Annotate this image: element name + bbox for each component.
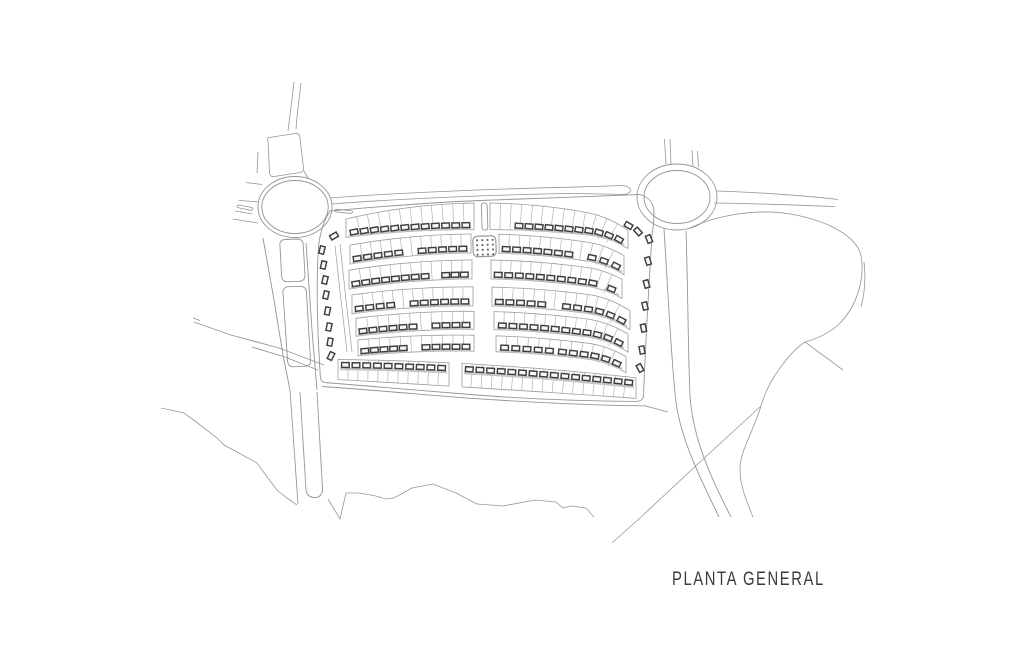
svg-text:PLANTA GENERAL: PLANTA GENERAL [672, 567, 825, 590]
